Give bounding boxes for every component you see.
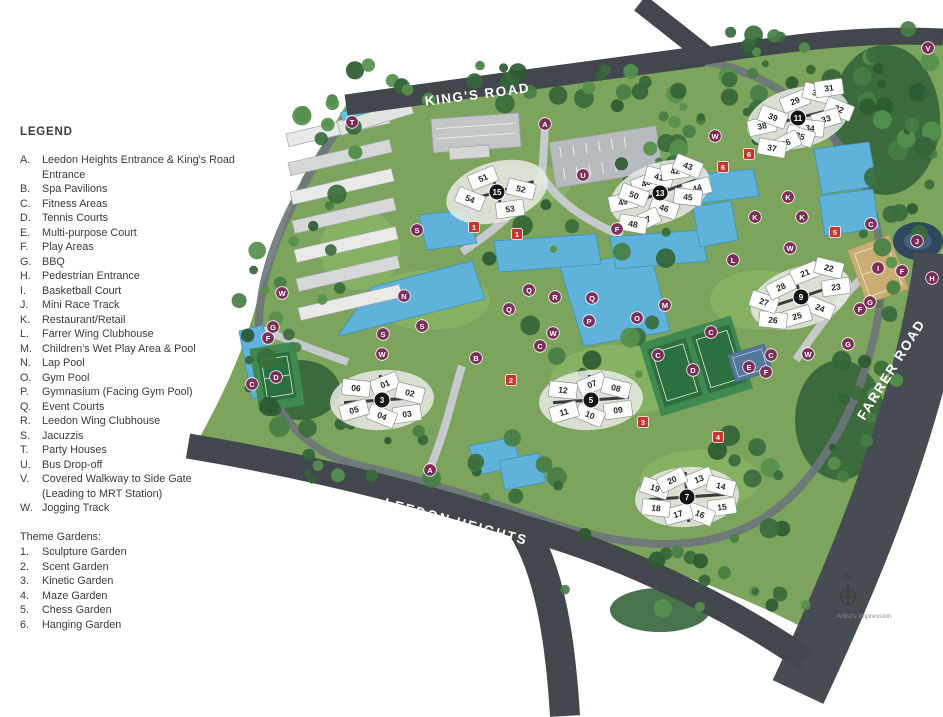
legend-item-key: 6. (20, 618, 42, 633)
tree (325, 244, 337, 256)
tree (699, 575, 711, 587)
tree (907, 203, 918, 214)
building-number: 15 (717, 501, 728, 512)
facility-marker-d: D (687, 364, 700, 377)
tree (616, 84, 632, 100)
legend-item-label: Bus Drop-off (42, 458, 102, 473)
facility-marker-letter: R (552, 293, 558, 302)
tree (259, 397, 278, 416)
tree (645, 316, 659, 330)
legend-item-key: J. (20, 298, 42, 313)
legend-item: L.Farrer Wing Clubhouse (20, 327, 262, 342)
tree (550, 246, 557, 253)
tree (860, 435, 873, 448)
facility-marker-c: C (652, 349, 665, 362)
building-block-23: 23 (821, 277, 851, 297)
tree (725, 27, 736, 38)
facility-marker-k: K (796, 211, 809, 224)
tree (801, 600, 811, 610)
legend-item-label: Gymnasium (Facing Gym Pool) (42, 385, 193, 400)
legend-item: J.Mini Race Track (20, 298, 262, 313)
legend-item: E.Multi-purpose Court (20, 226, 262, 241)
garden-marker-2: 2 (506, 375, 517, 386)
block-number: 13 (656, 189, 665, 198)
legend-item-key: 4. (20, 589, 42, 604)
tree (308, 476, 316, 484)
facility-marker-letter: G (867, 298, 873, 307)
legend-item: T.Party Houses (20, 443, 262, 458)
legend-item-label: Sculpture Garden (42, 545, 127, 560)
tree (582, 351, 601, 370)
tree (468, 454, 485, 471)
facility-marker-d: D (270, 371, 283, 384)
legend-item-label: Restaurant/Retail (42, 313, 125, 328)
facility-marker-w: W (784, 242, 797, 255)
legend-item-key: H. (20, 269, 42, 284)
tree (635, 370, 643, 378)
tree (553, 481, 563, 491)
facility-marker-letter: Q (589, 294, 595, 303)
facility-marker-letter: W (278, 289, 286, 298)
legend-item-key: I. (20, 284, 42, 299)
tree (668, 116, 680, 128)
facility-marker-letter: H (929, 274, 934, 283)
garden-marker-6: 6 (744, 149, 755, 160)
site-plan-page: KING'S ROAD FARRER ROAD LEEDON HEIGHTS 5… (0, 0, 943, 717)
legend-item-label: (Leading to MRT Station) (42, 487, 162, 502)
legend-item: S.Jacuzzis (20, 429, 262, 444)
legend-item-key: E. (20, 226, 42, 241)
block-number: 3 (380, 396, 385, 405)
legend-item-key: R. (20, 414, 42, 429)
tree (682, 125, 695, 138)
building-block-45: 45 (673, 188, 703, 207)
legend-item-label: Jogging Track (42, 501, 109, 516)
tree (806, 65, 816, 75)
garden-marker-5: 5 (830, 227, 841, 238)
legend-item: V.Covered Walkway to Side Gate (20, 472, 262, 487)
tree (886, 257, 898, 269)
tree (752, 588, 759, 595)
compass-north-label: N (845, 572, 852, 583)
facility-marker-letter: U (580, 171, 585, 180)
legend-item: 3.Kinetic Garden (20, 574, 262, 589)
building-block-12: 12 (548, 381, 578, 400)
legend-item-key: F. (20, 240, 42, 255)
tree (288, 236, 299, 247)
facility-marker-letter: B (473, 354, 479, 363)
legend-item-label: Event Courts (42, 400, 104, 415)
legend-item-label: Hanging Garden (42, 618, 121, 633)
legend-item: 2.Scent Garden (20, 560, 262, 575)
legend-item-label: Chess Garden (42, 603, 112, 618)
legend-item: N.Lap Pool (20, 356, 262, 371)
legend-item: 4.Maze Garden (20, 589, 262, 604)
tree (900, 21, 916, 37)
tree (623, 64, 638, 79)
legend-item: P.Gymnasium (Facing Gym Pool) (20, 385, 262, 400)
legend-item: W.Jogging Track (20, 501, 262, 516)
facility-marker-w: W (276, 287, 289, 300)
tree (560, 585, 570, 595)
tree (578, 528, 591, 541)
legend-item-label: Party Houses (42, 443, 107, 458)
legend-item: M.Children's Wet Play Area & Pool (20, 342, 262, 357)
facility-marker-j: J (911, 235, 924, 248)
tree (283, 329, 295, 341)
facility-marker-letter: N (401, 292, 406, 301)
facility-marker-q: Q (523, 284, 536, 297)
garden-marker-number: 2 (509, 376, 513, 385)
facility-marker-t: T (346, 116, 359, 129)
legend-item-key: 2. (20, 560, 42, 575)
tree (721, 89, 738, 106)
tree (548, 347, 566, 365)
tree (695, 602, 705, 612)
legend-item: U.Bus Drop-off (20, 458, 262, 473)
legend-item: K.Restaurant/Retail (20, 313, 262, 328)
facility-marker-p: P (583, 315, 596, 328)
facility-marker-q: Q (586, 292, 599, 305)
tree (615, 157, 628, 170)
tree (413, 425, 425, 437)
legend-item: 1.Sculpture Garden (20, 545, 262, 560)
legend-item-label: Lap Pool (42, 356, 85, 371)
tree (653, 599, 672, 618)
facility-marker-w: W (802, 348, 815, 361)
tree (565, 219, 579, 233)
facility-marker-a: A (539, 118, 552, 131)
facility-marker-letter: K (799, 213, 805, 222)
tree (261, 286, 270, 295)
facility-marker-letter: S (380, 330, 385, 339)
tree (326, 97, 339, 110)
tree (722, 72, 737, 87)
legend-item-key: L. (20, 327, 42, 342)
tree (859, 230, 868, 239)
legend-item-label: Leedon Heights Entrance & King's Road En… (42, 153, 262, 182)
tree (298, 419, 316, 437)
tree (582, 81, 595, 94)
tree (613, 243, 631, 261)
facility-marker-letter: T (350, 118, 355, 127)
artists-impression-caption: Artist's Impression (836, 613, 892, 620)
tree (773, 470, 783, 480)
legend-item: H.Pedestrian Entrance (20, 269, 262, 284)
tree (838, 393, 850, 405)
building-number: 37 (766, 142, 777, 154)
garden-marker-1: 1 (469, 222, 480, 233)
tree (828, 457, 841, 470)
facility-marker-letter: F (615, 225, 620, 234)
facility-marker-letter: L (731, 256, 736, 265)
tree (331, 468, 345, 482)
tree (915, 137, 935, 157)
facility-marker-letter: G (845, 340, 851, 349)
tree (643, 141, 657, 155)
facility-marker-letter: C (655, 351, 661, 360)
facility-marker-letter: A (427, 466, 433, 475)
tree (922, 89, 930, 97)
facility-marker-s: S (377, 328, 390, 341)
building-number: 06 (351, 383, 362, 394)
legend-item-label: Covered Walkway to Side Gate (42, 472, 192, 487)
facility-marker-r: R (549, 291, 562, 304)
facility-marker-letter: F (858, 305, 863, 314)
tree (748, 68, 758, 78)
legend-item: B.Spa Pavilions (20, 182, 262, 197)
block-number: 15 (493, 188, 502, 197)
facility-marker-w: W (376, 348, 389, 361)
legend-item-key: U. (20, 458, 42, 473)
facility-marker-letter: K (752, 213, 758, 222)
legend-item: C.Fitness Areas (20, 197, 262, 212)
block-number: 11 (794, 114, 803, 123)
tree (924, 180, 934, 190)
facility-marker-letter: D (690, 366, 696, 375)
facility-marker-letter: Q (506, 305, 512, 314)
building-number: 31 (824, 82, 835, 93)
facility-marker-i: I (872, 262, 885, 275)
facility-marker-a: A (424, 464, 437, 477)
legend-item-label: Pedestrian Entrance (42, 269, 140, 284)
facility-marker-letter: F (764, 368, 769, 377)
building-number: 12 (558, 385, 569, 396)
tree (864, 167, 885, 188)
facility-marker-l: L (727, 254, 740, 267)
legend-item: G.BBQ (20, 255, 262, 270)
tree (853, 67, 872, 86)
tree (743, 469, 761, 487)
garden-marker-number: 1 (515, 230, 519, 239)
facility-marker-letter: G (270, 323, 276, 332)
tree (324, 120, 332, 128)
legend-item-continuation: (Leading to MRT Station) (20, 487, 262, 502)
facility-marker-v: V (922, 42, 935, 55)
tree (762, 60, 769, 67)
legend-item-label: Scent Garden (42, 560, 109, 575)
facility-marker-f: F (611, 223, 624, 236)
facility-marker-c: C (865, 218, 878, 231)
legend-item: 6.Hanging Garden (20, 618, 262, 633)
tree (886, 280, 900, 294)
legend-item-label: Maze Garden (42, 589, 107, 604)
legend-item-key: P. (20, 385, 42, 400)
tree (773, 587, 784, 598)
tree (679, 103, 687, 111)
tree (730, 534, 739, 543)
tree (504, 429, 521, 446)
legend-item: F.Play Areas (20, 240, 262, 255)
legend-item: D.Tennis Courts (20, 211, 262, 226)
facility-marker-w: W (547, 327, 560, 340)
garden-marker-6: 6 (718, 162, 729, 173)
legend-item-label: Play Areas (42, 240, 94, 255)
legend-item-key: W. (20, 501, 42, 516)
legend-item-label: Mini Race Track (42, 298, 119, 313)
tree (905, 117, 920, 132)
tree (620, 328, 640, 348)
legend-item: R.Leedon Wing Clubhouse (20, 414, 262, 429)
facility-marker-s: S (416, 320, 429, 333)
legend-item-label: Spa Pavilions (42, 182, 107, 197)
tree (662, 228, 671, 237)
tree (748, 438, 766, 456)
tree (362, 58, 375, 71)
facility-marker-e: E (743, 361, 756, 374)
facility-marker-letter: F (900, 267, 905, 276)
tree (475, 61, 485, 71)
facility-marker-g: G (864, 296, 877, 309)
facility-marker-s: S (411, 224, 424, 237)
facility-marker-letter: W (786, 244, 794, 253)
garden-marker-number: 6 (721, 163, 725, 172)
tree (837, 471, 849, 483)
facility-marker-w: W (709, 130, 722, 143)
legend-item: Q.Event Courts (20, 400, 262, 415)
tree (596, 71, 606, 81)
legend-item-label: Jacuzzis (42, 429, 83, 444)
facility-marker-letter: W (549, 329, 557, 338)
legend-item: O.Gym Pool (20, 371, 262, 386)
legend-item-key: K. (20, 313, 42, 328)
tree (402, 84, 413, 95)
legend-item-key: V. (20, 472, 42, 487)
tree (384, 437, 391, 444)
tree (508, 489, 523, 504)
tree (755, 37, 763, 45)
tree (659, 111, 669, 121)
garden-marker-4: 4 (713, 432, 724, 443)
facility-marker-c: C (705, 326, 718, 339)
facility-marker-h: H (926, 272, 939, 285)
tree (308, 221, 318, 231)
tree (292, 106, 311, 125)
facility-marker-q: Q (503, 303, 516, 316)
legend-item-key: M. (20, 342, 42, 357)
facility-marker-letter: W (711, 132, 719, 141)
legend-item-label: Children's Wet Play Area & Pool (42, 342, 196, 357)
facility-marker-letter: C (537, 342, 543, 351)
legend-item-key: A. (20, 153, 42, 182)
building-number: 23 (831, 281, 842, 292)
tree (348, 145, 362, 159)
building-block-31: 31 (814, 78, 844, 98)
garden-marker-number: 5 (833, 228, 837, 237)
garden-marker-number: 6 (747, 150, 751, 159)
tree (877, 80, 886, 89)
garden-marker-1: 1 (512, 229, 523, 240)
tree (541, 199, 552, 210)
legend-item-key: B. (20, 182, 42, 197)
facility-marker-letter: W (378, 350, 386, 359)
legend-item-label: Leedon Wing Clubhouse (42, 414, 160, 429)
tree (866, 48, 882, 64)
facility-marker-letter: K (785, 193, 791, 202)
tree (832, 351, 851, 370)
facility-marker-letter: C (768, 351, 774, 360)
tree (660, 547, 672, 559)
tree (891, 204, 908, 221)
tree (873, 238, 891, 256)
block-number: 9 (799, 293, 804, 302)
tree (327, 185, 346, 204)
facility-marker-letter: S (419, 322, 424, 331)
tree (639, 76, 652, 89)
tree (697, 113, 705, 121)
legend-item-key: O. (20, 371, 42, 386)
tree (611, 99, 624, 112)
tree (858, 355, 871, 368)
tree (921, 52, 940, 71)
facility-marker-letter: V (925, 44, 930, 53)
facility-marker-f: F (896, 265, 909, 278)
facility-marker-letter: C (868, 220, 874, 229)
tree (313, 460, 324, 471)
facility-marker-g: G (267, 321, 280, 334)
tree (334, 282, 346, 294)
tree (767, 29, 781, 43)
legend-item-key: G. (20, 255, 42, 270)
facility-marker-letter: M (662, 301, 668, 310)
tree (671, 546, 684, 559)
facility-marker-m: M (659, 299, 672, 312)
garden-marker-number: 1 (472, 223, 476, 232)
legend-item-key: D. (20, 211, 42, 226)
legend-item-key: Q. (20, 400, 42, 415)
facility-marker-letter: Q (526, 286, 532, 295)
building-block-53: 53 (495, 199, 525, 219)
facility-marker-letter: O (634, 314, 640, 323)
legend-item: A.Leedon Heights Entrance & King's Road … (20, 153, 262, 182)
tree (760, 518, 780, 538)
tree (346, 61, 364, 79)
block-number: 7 (685, 493, 690, 502)
facility-marker-letter: D (273, 373, 279, 382)
tree (849, 386, 863, 400)
tree (317, 294, 327, 304)
legend-item-label: Kinetic Garden (42, 574, 113, 589)
building-number: 26 (768, 315, 779, 326)
facility-marker-o: O (631, 312, 644, 325)
tree (520, 316, 540, 336)
tree (728, 454, 740, 466)
facility-marker-letter: A (542, 120, 548, 129)
facility-marker-g: G (842, 338, 855, 351)
tree (881, 306, 897, 322)
tree (765, 599, 778, 612)
building-number: 53 (505, 203, 516, 214)
building-block-06: 06 (341, 379, 371, 398)
legend-item-key: 3. (20, 574, 42, 589)
legend-item-key: S. (20, 429, 42, 444)
tree (718, 566, 731, 579)
facility-marker-c: C (534, 340, 547, 353)
facility-marker-c: C (765, 349, 778, 362)
legend-item-key: N. (20, 356, 42, 371)
legend-item-label: Tennis Courts (42, 211, 108, 226)
facility-marker-letter: S (414, 226, 419, 235)
facility-marker-letter: C (708, 328, 714, 337)
facility-marker-f: F (760, 366, 773, 379)
legend-item: 5.Chess Garden (20, 603, 262, 618)
building-block-18: 18 (641, 499, 671, 518)
facility-marker-k: K (749, 211, 762, 224)
tree (873, 63, 884, 74)
theme-gardens-title: Theme Gardens: (20, 530, 262, 545)
tree (829, 444, 837, 452)
garden-marker-number: 3 (641, 418, 645, 427)
